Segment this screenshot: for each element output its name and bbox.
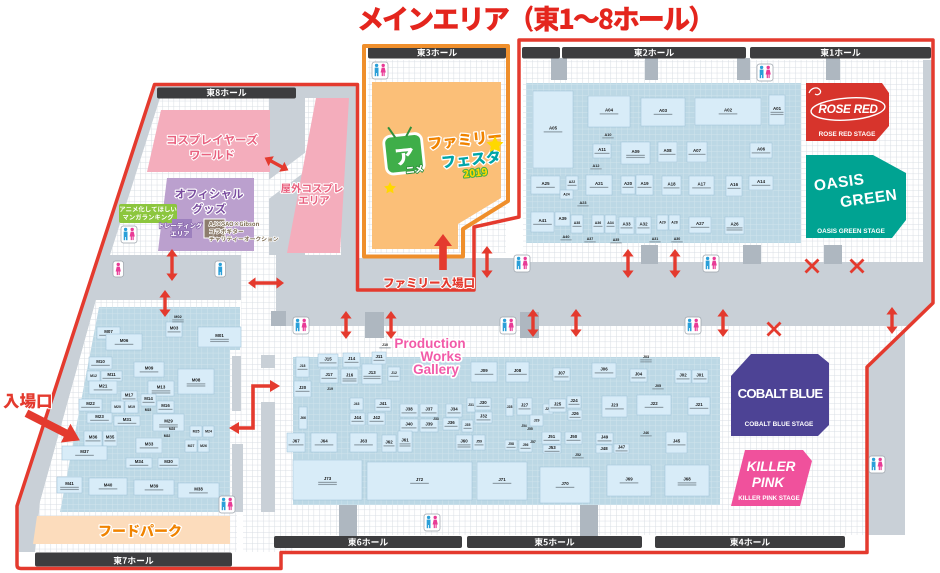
svg-text:M07: M07 bbox=[104, 329, 113, 334]
svg-text:J44: J44 bbox=[354, 415, 362, 420]
svg-text:J54: J54 bbox=[521, 424, 527, 428]
svg-text:M26: M26 bbox=[200, 444, 207, 448]
svg-text:M17: M17 bbox=[125, 392, 134, 397]
svg-text:A18: A18 bbox=[667, 181, 676, 186]
svg-text:A10: A10 bbox=[605, 133, 612, 137]
svg-text:J08: J08 bbox=[514, 368, 522, 373]
svg-text:J17: J17 bbox=[325, 372, 333, 377]
svg-text:J59: J59 bbox=[476, 439, 482, 443]
svg-text:J11: J11 bbox=[375, 354, 383, 359]
svg-text:J39: J39 bbox=[425, 421, 433, 426]
svg-text:J42: J42 bbox=[373, 415, 381, 420]
svg-text:J68: J68 bbox=[683, 476, 691, 481]
svg-text:M02: M02 bbox=[174, 315, 181, 319]
svg-text:M10: M10 bbox=[96, 359, 105, 364]
svg-text:J48: J48 bbox=[600, 446, 608, 451]
svg-text:COBALT BLUE STAGE: COBALT BLUE STAGE bbox=[745, 421, 814, 428]
svg-text:M16: M16 bbox=[161, 403, 170, 408]
svg-text:J41: J41 bbox=[379, 401, 387, 406]
svg-text:A14: A14 bbox=[757, 179, 766, 184]
svg-text:A39: A39 bbox=[558, 216, 567, 221]
svg-text:J29: J29 bbox=[534, 419, 540, 423]
svg-text:J37: J37 bbox=[425, 406, 433, 411]
svg-text:A17: A17 bbox=[697, 181, 706, 186]
svg-text:J61: J61 bbox=[401, 437, 409, 442]
svg-text:A08: A08 bbox=[663, 148, 672, 153]
svg-text:J35: J35 bbox=[465, 423, 471, 427]
svg-text:J31: J31 bbox=[468, 403, 474, 407]
svg-text:J27: J27 bbox=[521, 402, 529, 407]
svg-text:J58: J58 bbox=[508, 442, 514, 446]
svg-text:J73: J73 bbox=[324, 476, 332, 481]
svg-text:M28: M28 bbox=[169, 427, 175, 431]
svg-text:J38: J38 bbox=[405, 406, 413, 411]
svg-text:M30: M30 bbox=[164, 459, 173, 464]
svg-text:J05: J05 bbox=[655, 384, 661, 388]
svg-text:M13: M13 bbox=[157, 384, 166, 389]
svg-text:A36: A36 bbox=[595, 221, 601, 225]
svg-text:M23: M23 bbox=[95, 414, 104, 419]
svg-text:J04: J04 bbox=[635, 371, 643, 376]
svg-text:J69: J69 bbox=[625, 476, 633, 481]
svg-text:J30: J30 bbox=[479, 400, 487, 405]
svg-text:J70: J70 bbox=[561, 481, 569, 486]
svg-text:J56: J56 bbox=[523, 443, 529, 447]
svg-text:M22: M22 bbox=[86, 401, 95, 406]
svg-text:J34: J34 bbox=[450, 406, 458, 411]
svg-text:M33: M33 bbox=[145, 441, 154, 446]
svg-text:J02: J02 bbox=[679, 372, 687, 377]
svg-text:J01: J01 bbox=[696, 372, 704, 377]
svg-text:J63: J63 bbox=[360, 438, 368, 443]
svg-text:OASIS GREEN STAGE: OASIS GREEN STAGE bbox=[817, 228, 885, 235]
svg-text:J50: J50 bbox=[570, 434, 578, 439]
svg-text:J20: J20 bbox=[299, 385, 307, 390]
svg-text:A12: A12 bbox=[593, 164, 600, 168]
svg-text:J15: J15 bbox=[324, 356, 332, 361]
svg-text:M12: M12 bbox=[90, 374, 97, 378]
svg-text:J57: J57 bbox=[530, 440, 536, 444]
svg-text:J28: J28 bbox=[507, 405, 513, 409]
svg-text:M32: M32 bbox=[164, 434, 171, 438]
svg-text:J67: J67 bbox=[292, 438, 300, 443]
svg-text:M36: M36 bbox=[89, 434, 98, 439]
svg-text:J21: J21 bbox=[695, 402, 703, 407]
svg-text:A40: A40 bbox=[563, 235, 570, 239]
svg-text:J36: J36 bbox=[447, 420, 455, 425]
svg-text:M38: M38 bbox=[194, 486, 203, 491]
svg-text:A35: A35 bbox=[613, 238, 620, 242]
svg-text:M37: M37 bbox=[80, 449, 89, 454]
svg-text:J55: J55 bbox=[527, 427, 533, 431]
svg-text:A30: A30 bbox=[674, 237, 681, 241]
svg-text:J66: J66 bbox=[300, 416, 306, 420]
svg-text:M01: M01 bbox=[215, 333, 224, 338]
svg-text:M06: M06 bbox=[120, 338, 129, 343]
svg-text:A25: A25 bbox=[541, 181, 550, 186]
svg-text:PINK: PINK bbox=[752, 475, 786, 490]
svg-text:J62: J62 bbox=[385, 439, 393, 444]
svg-text:M14: M14 bbox=[144, 396, 153, 401]
svg-text:M41: M41 bbox=[65, 481, 74, 486]
svg-text:A02: A02 bbox=[724, 107, 733, 112]
svg-text:M19: M19 bbox=[128, 405, 135, 409]
svg-text:J52: J52 bbox=[575, 453, 581, 457]
svg-text:A37: A37 bbox=[587, 237, 594, 241]
svg-text:J64: J64 bbox=[320, 438, 328, 443]
svg-text:A01: A01 bbox=[773, 106, 782, 111]
svg-text:J12: J12 bbox=[391, 371, 397, 375]
svg-text:A28: A28 bbox=[671, 221, 677, 225]
svg-text:J25: J25 bbox=[554, 401, 562, 406]
svg-text:J13: J13 bbox=[368, 370, 376, 375]
svg-text:A21: A21 bbox=[595, 181, 604, 186]
svg-text:A24: A24 bbox=[563, 193, 569, 197]
svg-text:M25: M25 bbox=[193, 430, 200, 434]
svg-text:J40: J40 bbox=[405, 421, 413, 426]
svg-text:J33: J33 bbox=[433, 417, 439, 421]
svg-text:M21: M21 bbox=[99, 383, 108, 388]
svg-text:M35: M35 bbox=[106, 434, 115, 439]
svg-text:A04: A04 bbox=[605, 107, 614, 112]
svg-text:M34: M34 bbox=[135, 459, 144, 464]
svg-text:COBALT BLUE: COBALT BLUE bbox=[738, 386, 824, 401]
svg-text:J16: J16 bbox=[346, 372, 354, 377]
svg-text:J45: J45 bbox=[673, 438, 681, 443]
svg-text:Gallery: Gallery bbox=[413, 362, 459, 377]
svg-text:A32: A32 bbox=[639, 221, 648, 226]
svg-text:M27: M27 bbox=[188, 444, 195, 448]
svg-text:A05: A05 bbox=[549, 125, 558, 130]
svg-text:J47: J47 bbox=[618, 444, 626, 449]
svg-text:J14: J14 bbox=[348, 356, 356, 361]
svg-text:M15: M15 bbox=[145, 408, 152, 412]
svg-text:J49: J49 bbox=[601, 434, 609, 439]
svg-text:ROSE RED STAGE: ROSE RED STAGE bbox=[819, 131, 876, 138]
svg-text:J03: J03 bbox=[643, 355, 649, 359]
svg-text:A23: A23 bbox=[580, 201, 587, 205]
svg-text:A22: A22 bbox=[569, 180, 575, 184]
svg-text:A38: A38 bbox=[574, 221, 580, 225]
svg-text:M20: M20 bbox=[114, 405, 121, 409]
svg-text:M39: M39 bbox=[150, 483, 159, 488]
svg-text:J06: J06 bbox=[600, 366, 608, 371]
svg-text:J53: J53 bbox=[548, 445, 556, 450]
svg-text:A09: A09 bbox=[631, 149, 640, 154]
svg-text:J51: J51 bbox=[548, 434, 556, 439]
svg-text:M40: M40 bbox=[104, 482, 113, 487]
svg-text:J26: J26 bbox=[571, 411, 579, 416]
svg-text:J10: J10 bbox=[382, 343, 388, 347]
svg-text:A19: A19 bbox=[640, 181, 649, 186]
svg-text:J24: J24 bbox=[570, 398, 578, 403]
svg-text:J71: J71 bbox=[498, 477, 506, 482]
svg-text:A06: A06 bbox=[757, 146, 766, 151]
svg-text:ROSE RED: ROSE RED bbox=[818, 102, 878, 116]
svg-text:A31: A31 bbox=[652, 237, 659, 241]
svg-text:A16: A16 bbox=[730, 182, 739, 187]
svg-text:J22: J22 bbox=[650, 401, 658, 406]
svg-text:J18: J18 bbox=[300, 364, 306, 368]
svg-text:J09: J09 bbox=[480, 368, 488, 373]
svg-text:J60: J60 bbox=[460, 438, 468, 443]
svg-text:M29: M29 bbox=[164, 418, 173, 423]
svg-text:M11: M11 bbox=[107, 372, 116, 377]
svg-text:A33: A33 bbox=[622, 221, 631, 226]
svg-text:A34: A34 bbox=[607, 221, 613, 225]
svg-text:M31: M31 bbox=[123, 417, 132, 422]
svg-text:A27: A27 bbox=[696, 221, 705, 226]
svg-text:J19: J19 bbox=[327, 387, 333, 391]
svg-text:J23: J23 bbox=[611, 402, 619, 407]
svg-text:J32: J32 bbox=[480, 413, 488, 418]
svg-text:A20: A20 bbox=[624, 181, 633, 186]
svg-text:A11: A11 bbox=[598, 147, 606, 152]
svg-text:KILLER: KILLER bbox=[747, 459, 796, 474]
svg-text:A03: A03 bbox=[659, 108, 668, 113]
svg-text:J72: J72 bbox=[416, 477, 424, 482]
svg-text:A41: A41 bbox=[538, 218, 547, 223]
svg-text:M09: M09 bbox=[145, 365, 154, 370]
svg-text:A29: A29 bbox=[659, 221, 665, 225]
svg-text:J07: J07 bbox=[558, 370, 566, 375]
svg-text:KILLER PINK STAGE: KILLER PINK STAGE bbox=[738, 495, 799, 502]
svg-text:J43: J43 bbox=[354, 402, 360, 406]
svg-text:M08: M08 bbox=[192, 377, 201, 382]
svg-text:A26: A26 bbox=[730, 221, 739, 226]
svg-text:A07: A07 bbox=[693, 148, 702, 153]
svg-text:M24: M24 bbox=[205, 430, 212, 434]
svg-text:M03: M03 bbox=[170, 325, 179, 330]
svg-text:J46: J46 bbox=[643, 431, 649, 435]
